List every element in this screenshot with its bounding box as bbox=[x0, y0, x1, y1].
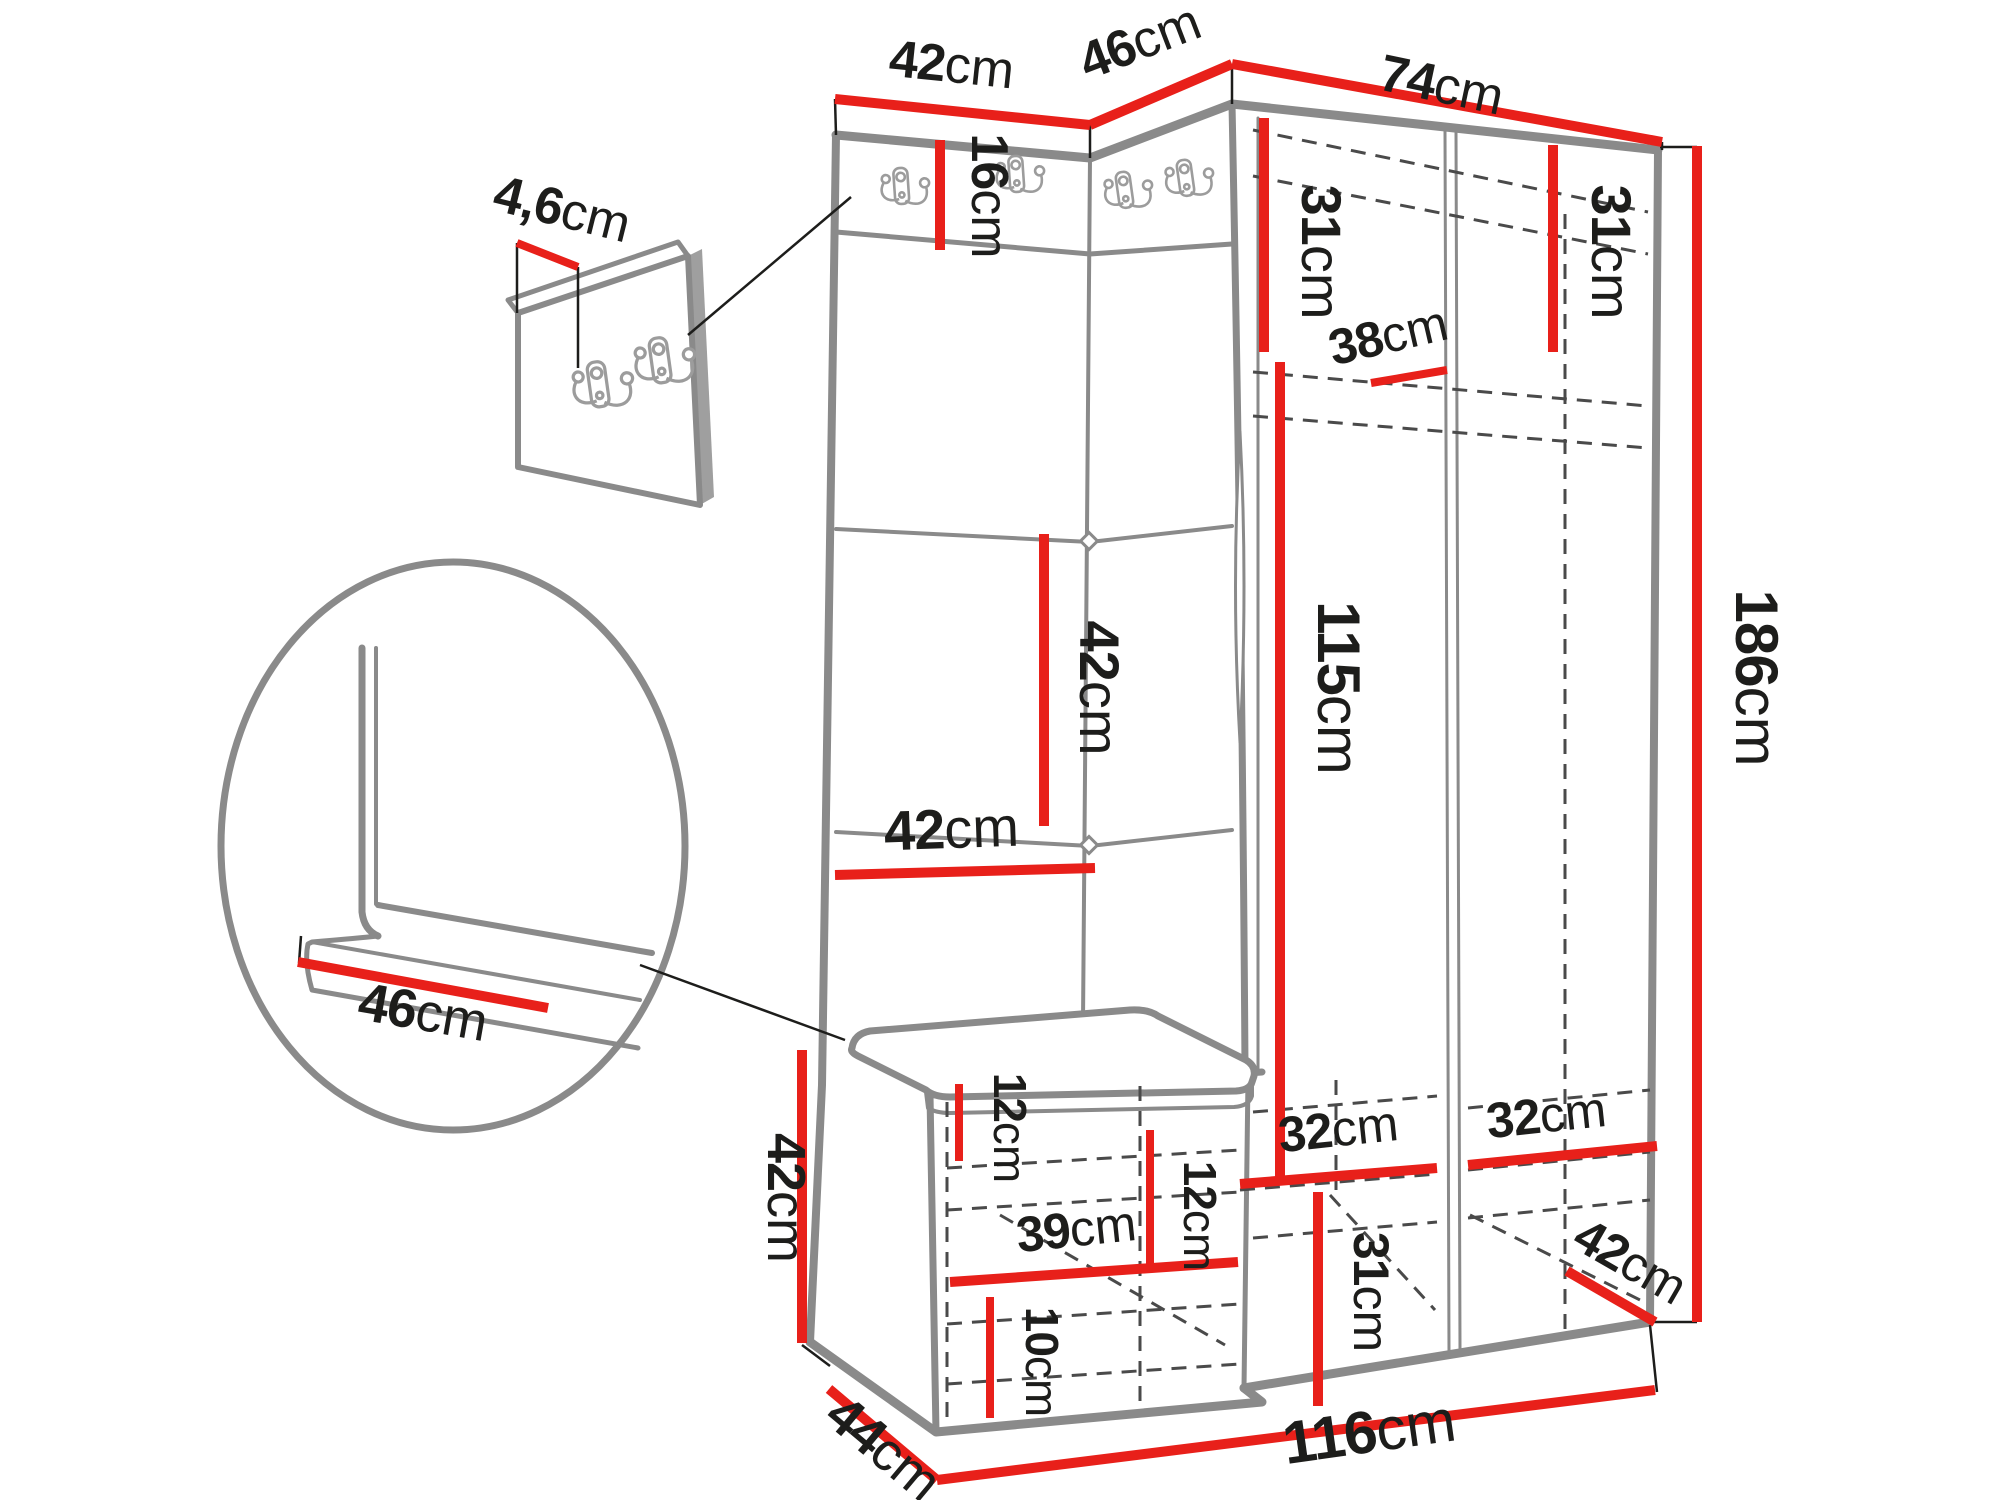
dim-42v-label: 42cm bbox=[1068, 621, 1131, 756]
main-unit-outline bbox=[810, 104, 1658, 1432]
extension-tick bbox=[1660, 142, 1697, 150]
dim-116-label: 116cm bbox=[1278, 1386, 1459, 1477]
dim-42h-label: 42cm bbox=[883, 795, 1020, 863]
extension-tick bbox=[835, 99, 836, 135]
dim-top-42-line bbox=[835, 99, 1090, 125]
diagram-canvas: 42cm 46cm 74cm 4,6cm 16cm 31cm 31cm 38cm… bbox=[0, 0, 2000, 1500]
dim-12-left-label: 12cm bbox=[984, 1073, 1036, 1184]
dim-top-42-label: 42cm bbox=[887, 30, 1018, 101]
dim-31-bottom-label: 31cm bbox=[1343, 1232, 1399, 1352]
dim-115-label: 115cm bbox=[1305, 601, 1372, 775]
dim-42h-line bbox=[835, 868, 1095, 875]
dim-31-right-label: 31cm bbox=[1580, 185, 1643, 320]
dim-top-74-label: 74cm bbox=[1374, 44, 1508, 127]
dim-12-right-label: 12cm bbox=[1174, 1161, 1226, 1272]
extension-tick bbox=[1650, 1322, 1697, 1392]
dimension-diagram: 42cm 46cm 74cm 4,6cm 16cm 31cm 31cm 38cm… bbox=[0, 0, 2000, 1500]
dim-4-6-line bbox=[517, 243, 578, 267]
door-handle bbox=[1236, 432, 1245, 742]
dim-42-bench-label: 42cm bbox=[756, 1133, 816, 1263]
dim-4-6-label: 4,6cm bbox=[488, 165, 637, 255]
dim-31-left-label: 31cm bbox=[1290, 185, 1353, 320]
dim-10-label: 10cm bbox=[1016, 1307, 1068, 1418]
dim-186-label: 186cm bbox=[1723, 589, 1790, 766]
leader-panel-detail bbox=[688, 197, 851, 335]
hook-panel-detail bbox=[508, 242, 714, 505]
dim-16-label: 16cm bbox=[960, 133, 1018, 258]
leader-circle-detail bbox=[640, 965, 845, 1040]
